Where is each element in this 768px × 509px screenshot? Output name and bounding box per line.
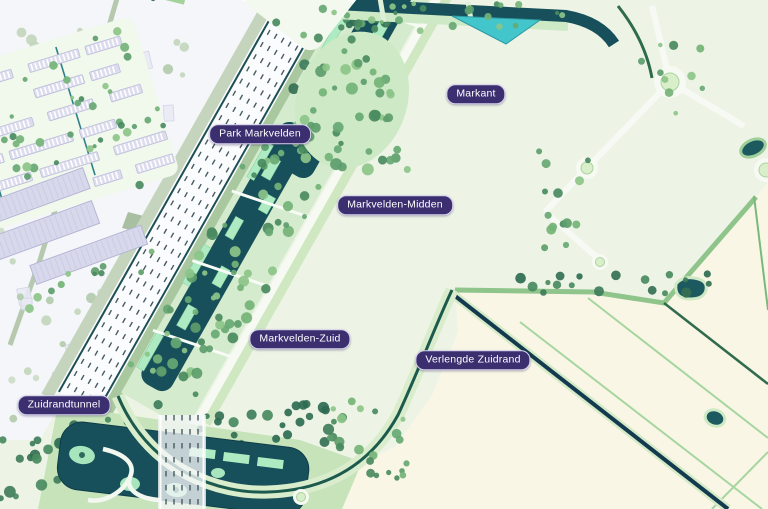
tree bbox=[333, 122, 344, 133]
tree bbox=[449, 22, 457, 30]
tree bbox=[372, 408, 378, 414]
tree bbox=[411, 1, 416, 6]
tree bbox=[366, 457, 374, 465]
tree bbox=[385, 22, 389, 26]
tree bbox=[394, 475, 399, 480]
tree bbox=[17, 28, 27, 38]
tree bbox=[229, 417, 239, 427]
tree bbox=[10, 258, 16, 264]
tree bbox=[696, 45, 704, 53]
tree bbox=[556, 272, 565, 281]
tree bbox=[417, 27, 424, 34]
tree bbox=[336, 443, 344, 451]
tree bbox=[366, 148, 373, 155]
tree bbox=[334, 145, 342, 153]
tree bbox=[374, 473, 380, 479]
tree bbox=[284, 409, 292, 417]
tree bbox=[36, 479, 47, 490]
tree bbox=[354, 59, 363, 68]
tree bbox=[673, 111, 678, 116]
tree bbox=[700, 86, 705, 91]
tree bbox=[369, 110, 381, 122]
tree bbox=[180, 72, 185, 77]
tree bbox=[272, 435, 280, 443]
tree bbox=[378, 156, 387, 165]
tree bbox=[361, 79, 367, 85]
tree bbox=[231, 432, 238, 439]
tree bbox=[540, 289, 547, 296]
tree bbox=[46, 297, 54, 305]
tree bbox=[163, 64, 173, 74]
tree bbox=[638, 58, 645, 65]
tree bbox=[549, 223, 558, 232]
tree bbox=[16, 455, 24, 463]
tree bbox=[362, 55, 370, 63]
tree bbox=[180, 42, 189, 51]
tree bbox=[370, 69, 377, 76]
faded-building bbox=[163, 105, 174, 121]
tree bbox=[665, 88, 674, 97]
tree bbox=[555, 11, 559, 15]
tree bbox=[247, 410, 257, 420]
tree bbox=[9, 415, 17, 423]
tree bbox=[575, 176, 584, 185]
tree bbox=[325, 153, 333, 161]
tree bbox=[559, 12, 565, 18]
tree bbox=[331, 406, 336, 411]
tree bbox=[319, 88, 327, 96]
tree bbox=[681, 288, 691, 298]
tree bbox=[515, 1, 522, 8]
tree bbox=[66, 405, 76, 415]
tree bbox=[553, 188, 563, 198]
tree bbox=[542, 159, 551, 168]
tree bbox=[641, 275, 650, 284]
tree bbox=[348, 398, 356, 406]
tree bbox=[545, 280, 550, 285]
tree bbox=[704, 270, 711, 277]
tree bbox=[362, 163, 374, 175]
tree bbox=[496, 23, 502, 29]
tree bbox=[74, 308, 81, 315]
tree bbox=[296, 418, 305, 427]
tree bbox=[528, 282, 538, 292]
tree bbox=[154, 400, 163, 409]
tree bbox=[658, 43, 663, 48]
tree bbox=[498, 2, 504, 8]
tree bbox=[331, 419, 337, 425]
tree bbox=[355, 19, 363, 27]
tree bbox=[515, 273, 526, 284]
tree bbox=[8, 376, 15, 383]
tree bbox=[389, 3, 395, 9]
tree bbox=[60, 341, 66, 347]
tree bbox=[299, 400, 309, 410]
tree bbox=[683, 277, 688, 282]
tree bbox=[366, 469, 375, 478]
field-pond bbox=[676, 278, 706, 299]
tree bbox=[541, 244, 548, 251]
tree bbox=[386, 470, 391, 475]
tree bbox=[594, 286, 604, 296]
tree bbox=[513, 23, 519, 29]
tree bbox=[368, 16, 376, 24]
tree bbox=[321, 406, 330, 415]
tree bbox=[545, 212, 552, 219]
tree bbox=[338, 24, 344, 30]
tree bbox=[283, 430, 292, 439]
tree bbox=[536, 148, 542, 154]
tree bbox=[466, 5, 475, 14]
masterplan-map: Park Markvelden Markant Markvelden-Midde… bbox=[0, 0, 768, 509]
tree bbox=[383, 116, 389, 122]
tree bbox=[17, 293, 24, 300]
tree bbox=[386, 156, 395, 165]
tree bbox=[323, 424, 334, 435]
tree bbox=[43, 445, 53, 455]
tree bbox=[41, 315, 51, 325]
tree bbox=[576, 273, 582, 279]
tree bbox=[662, 290, 668, 296]
tree bbox=[310, 107, 317, 114]
tree bbox=[105, 417, 111, 423]
tree bbox=[4, 486, 16, 498]
tree bbox=[393, 11, 397, 15]
tree bbox=[32, 454, 42, 464]
tree bbox=[374, 77, 385, 88]
tree bbox=[346, 83, 358, 95]
tree bbox=[648, 286, 657, 295]
tree bbox=[173, 39, 180, 46]
masterplan-canvas bbox=[0, 0, 768, 509]
tree bbox=[403, 460, 409, 466]
tree bbox=[687, 72, 695, 80]
tree bbox=[662, 76, 669, 83]
tree bbox=[24, 367, 32, 375]
tree bbox=[327, 435, 334, 442]
tree bbox=[395, 16, 403, 24]
tree bbox=[484, 13, 491, 20]
tree bbox=[322, 64, 330, 72]
tree bbox=[306, 413, 313, 420]
tree bbox=[262, 410, 273, 421]
tree bbox=[332, 85, 337, 90]
tree bbox=[354, 445, 364, 455]
tree bbox=[420, 5, 427, 12]
tree bbox=[33, 375, 39, 381]
tree bbox=[214, 418, 222, 426]
tree bbox=[300, 115, 310, 125]
tree bbox=[562, 218, 572, 228]
tree bbox=[348, 35, 356, 43]
tree bbox=[340, 64, 351, 75]
tree bbox=[341, 48, 347, 54]
zuidrand-tunnel-railway bbox=[158, 415, 206, 509]
tree bbox=[355, 112, 364, 121]
tree bbox=[302, 128, 312, 138]
tree bbox=[280, 422, 286, 428]
tree bbox=[375, 89, 384, 98]
tree bbox=[657, 69, 664, 76]
tree bbox=[337, 414, 346, 423]
tree bbox=[611, 271, 621, 281]
tree bbox=[30, 441, 36, 447]
tree bbox=[380, 20, 384, 24]
tree bbox=[572, 221, 580, 229]
tree bbox=[669, 41, 678, 50]
tree bbox=[553, 281, 561, 289]
tree bbox=[401, 417, 406, 422]
tree bbox=[400, 472, 407, 479]
tree bbox=[404, 166, 411, 173]
tree bbox=[338, 162, 347, 171]
tree bbox=[338, 141, 343, 146]
tree bbox=[569, 282, 575, 288]
tree bbox=[706, 281, 712, 287]
tree bbox=[371, 26, 378, 33]
tree bbox=[585, 157, 591, 163]
tree bbox=[393, 146, 401, 154]
tree bbox=[563, 242, 569, 248]
pond-island bbox=[211, 468, 225, 478]
tree bbox=[396, 436, 404, 444]
tree bbox=[357, 405, 364, 412]
tree bbox=[666, 271, 673, 278]
tree bbox=[387, 91, 395, 99]
tree bbox=[402, 4, 407, 9]
tree bbox=[26, 34, 37, 45]
tree bbox=[542, 189, 548, 195]
